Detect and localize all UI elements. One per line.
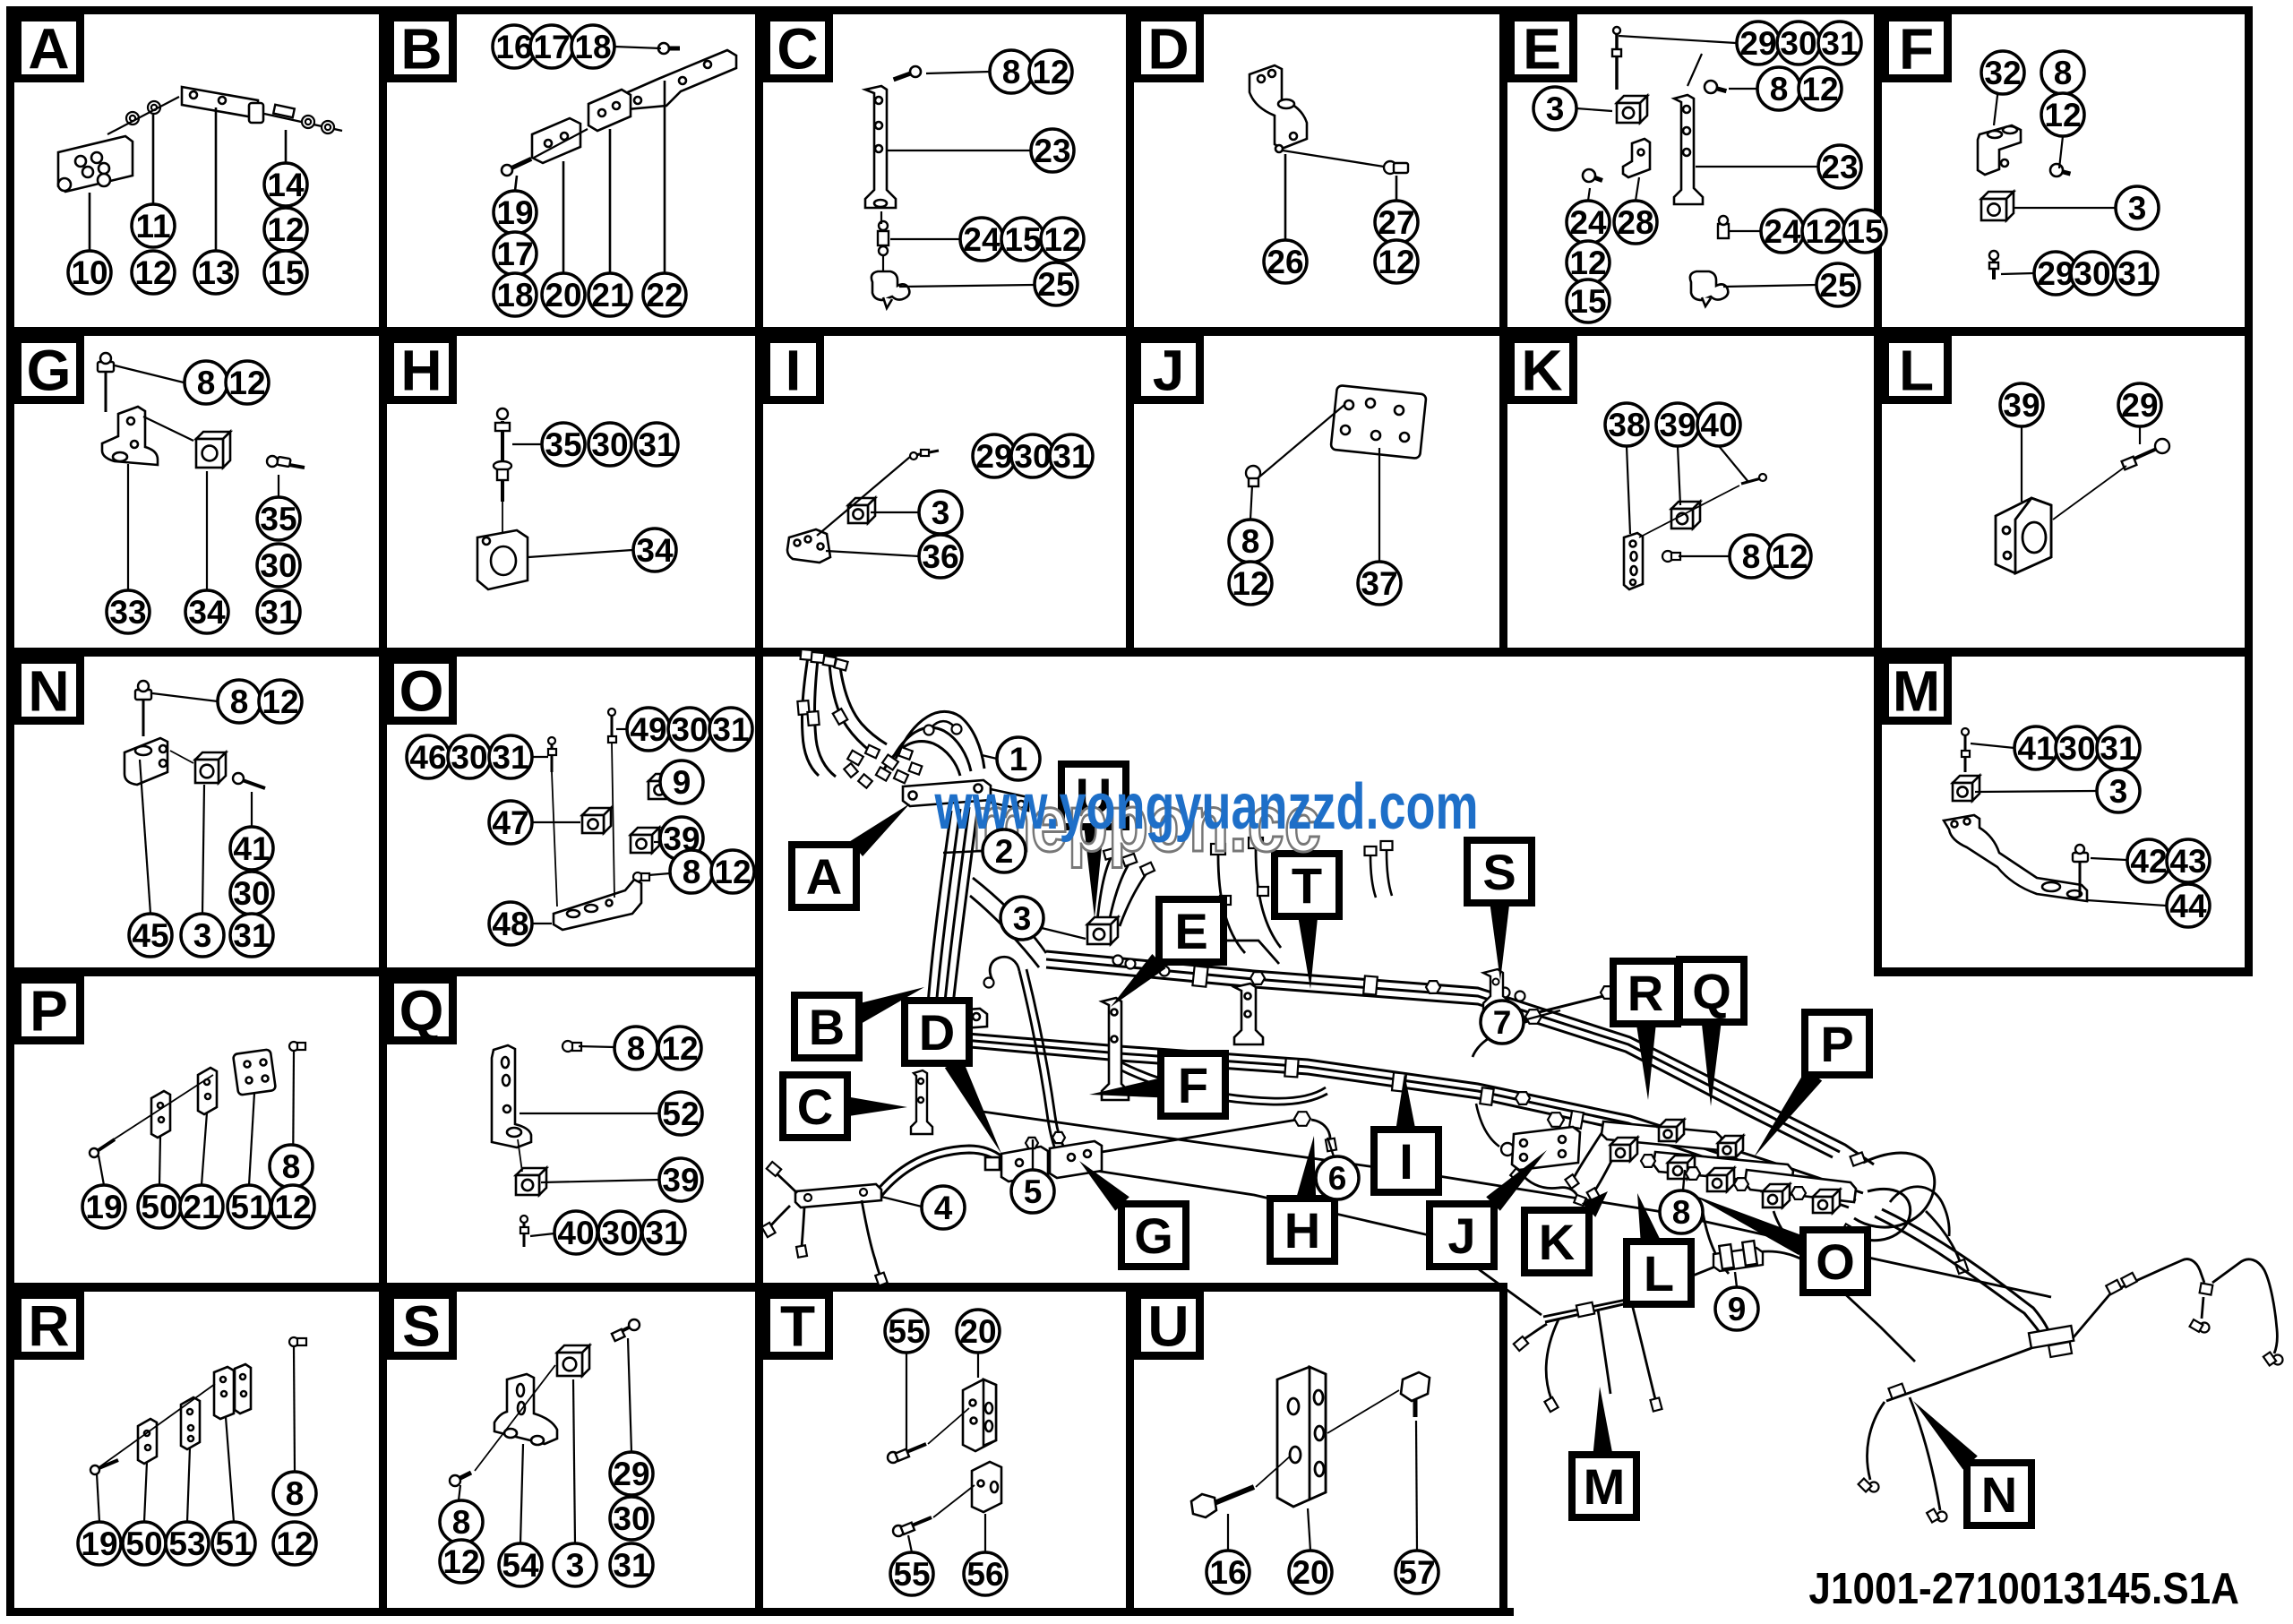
svg-text:26: 26 (1267, 244, 1303, 280)
svg-text:J: J (1447, 1207, 1475, 1264)
svg-text:A: A (28, 17, 69, 82)
svg-text:21: 21 (591, 277, 628, 314)
svg-text:45: 45 (132, 917, 168, 954)
svg-text:31: 31 (1052, 438, 1089, 475)
svg-text:G: G (27, 339, 72, 403)
svg-text:12: 12 (262, 683, 298, 720)
svg-text:31: 31 (638, 426, 674, 463)
svg-text:34: 34 (636, 532, 674, 569)
svg-text:30: 30 (601, 1215, 638, 1251)
svg-text:29: 29 (975, 438, 1012, 475)
svg-text:T: T (780, 1294, 815, 1359)
svg-text:3: 3 (2128, 190, 2147, 227)
svg-text:9: 9 (1728, 1291, 1747, 1328)
svg-text:3: 3 (566, 1547, 585, 1584)
svg-text:35: 35 (260, 501, 296, 537)
svg-text:30: 30 (451, 739, 487, 776)
svg-text:44: 44 (2169, 888, 2207, 924)
svg-text:31: 31 (492, 739, 528, 776)
svg-text:8: 8 (683, 854, 701, 890)
svg-text:20: 20 (959, 1313, 996, 1350)
svg-text:S: S (402, 1294, 441, 1359)
svg-text:8: 8 (627, 1030, 646, 1067)
svg-text:27: 27 (1378, 204, 1414, 241)
svg-text:D: D (1147, 17, 1189, 82)
svg-text:41: 41 (233, 830, 270, 867)
svg-text:B: B (400, 17, 442, 82)
svg-text:15: 15 (1004, 221, 1041, 258)
svg-text:12: 12 (276, 1525, 313, 1562)
svg-text:24: 24 (1764, 213, 1801, 250)
svg-text:K: K (1539, 1214, 1575, 1270)
svg-text:R: R (1627, 965, 1663, 1021)
svg-text:29: 29 (2037, 255, 2074, 292)
svg-text:54: 54 (502, 1547, 539, 1584)
svg-text:3: 3 (1013, 900, 1032, 937)
svg-text:25: 25 (1819, 267, 1856, 304)
svg-text:N: N (1981, 1466, 2017, 1523)
svg-text:12: 12 (442, 1543, 479, 1580)
svg-text:M: M (1893, 659, 1940, 724)
svg-text:50: 50 (141, 1189, 177, 1225)
svg-text:30: 30 (1780, 25, 1816, 62)
svg-text:53: 53 (168, 1525, 205, 1562)
svg-text:R: R (28, 1294, 69, 1359)
svg-text:15: 15 (1846, 213, 1883, 250)
svg-text:57: 57 (1398, 1554, 1435, 1591)
svg-text:31: 31 (260, 594, 296, 631)
svg-text:19: 19 (496, 194, 533, 231)
svg-text:24: 24 (963, 221, 1001, 258)
svg-text:M: M (1584, 1458, 1626, 1515)
svg-text:N: N (28, 659, 69, 724)
svg-text:30: 30 (591, 426, 628, 463)
svg-text:31: 31 (645, 1215, 682, 1251)
svg-text:D: D (919, 1004, 955, 1061)
svg-text:33: 33 (109, 594, 146, 631)
svg-text:3: 3 (932, 494, 950, 531)
svg-text:30: 30 (613, 1500, 649, 1537)
svg-text:23: 23 (1821, 149, 1858, 185)
svg-text:30: 30 (1014, 438, 1051, 475)
svg-text:55: 55 (893, 1556, 930, 1593)
svg-text:12: 12 (1805, 213, 1842, 250)
svg-text:23: 23 (1034, 133, 1070, 169)
svg-text:31: 31 (2100, 730, 2136, 767)
svg-text:C: C (797, 1078, 833, 1135)
svg-text:C: C (777, 17, 818, 82)
svg-text:4: 4 (934, 1190, 953, 1226)
svg-text:12: 12 (134, 254, 171, 291)
svg-text:B: B (809, 999, 845, 1055)
svg-text:3: 3 (193, 917, 212, 954)
svg-text:32: 32 (1984, 55, 2021, 91)
svg-text:I: I (786, 339, 802, 403)
svg-text:13: 13 (197, 254, 234, 291)
svg-text:42: 42 (2130, 843, 2167, 880)
svg-text:H: H (1284, 1202, 1320, 1259)
svg-text:25: 25 (1037, 266, 1074, 303)
svg-text:L: L (1644, 1245, 1674, 1302)
svg-text:37: 37 (1361, 565, 1397, 602)
svg-text:Q: Q (399, 979, 444, 1044)
svg-text:19: 19 (81, 1525, 117, 1562)
svg-text:H: H (400, 339, 442, 403)
svg-text:47: 47 (492, 804, 528, 841)
svg-text:29: 29 (2121, 387, 2158, 424)
svg-text:S: S (1482, 844, 1516, 900)
svg-text:28: 28 (1617, 204, 1653, 241)
svg-text:U: U (1147, 1294, 1189, 1359)
svg-text:I: I (1399, 1133, 1413, 1190)
svg-text:E: E (1174, 903, 1207, 959)
svg-text:O: O (399, 659, 444, 724)
svg-text:41: 41 (2017, 730, 2054, 767)
svg-text:51: 51 (230, 1189, 267, 1225)
svg-text:8: 8 (282, 1148, 301, 1185)
svg-text:12: 12 (274, 1189, 311, 1225)
svg-text:12: 12 (1032, 54, 1069, 90)
svg-text:14: 14 (267, 167, 305, 203)
svg-text:12: 12 (1043, 221, 1080, 258)
svg-text:18: 18 (574, 29, 611, 65)
svg-text:38: 38 (1608, 407, 1645, 443)
svg-text:F: F (1899, 17, 1934, 82)
svg-text:15: 15 (1569, 283, 1606, 320)
svg-text:51: 51 (215, 1525, 252, 1562)
svg-text:31: 31 (613, 1547, 649, 1584)
svg-text:24: 24 (1569, 204, 1607, 241)
svg-text:8: 8 (230, 683, 249, 720)
svg-text:11: 11 (135, 208, 170, 245)
svg-text:29: 29 (613, 1456, 649, 1492)
svg-text:43: 43 (2169, 843, 2206, 880)
svg-text:Q: Q (1692, 963, 1731, 1019)
svg-text:46: 46 (409, 739, 446, 776)
svg-text:K: K (1521, 339, 1562, 403)
svg-text:31: 31 (712, 711, 749, 748)
svg-text:E: E (1523, 17, 1561, 82)
svg-text:39: 39 (1659, 407, 1696, 443)
svg-text:12: 12 (1232, 565, 1268, 602)
svg-text:5: 5 (1024, 1173, 1043, 1210)
svg-text:30: 30 (233, 875, 270, 912)
svg-text:36: 36 (922, 538, 958, 575)
svg-text:20: 20 (1292, 1554, 1328, 1591)
svg-text:30: 30 (2058, 730, 2095, 767)
svg-text:48: 48 (492, 906, 528, 942)
svg-text:16: 16 (495, 29, 532, 65)
svg-text:15: 15 (267, 254, 304, 291)
svg-text:G: G (1134, 1207, 1173, 1264)
svg-text:A: A (806, 848, 842, 905)
svg-text:17: 17 (533, 29, 570, 65)
svg-text:12: 12 (1771, 538, 1808, 575)
svg-text:39: 39 (662, 1162, 699, 1199)
svg-text:56: 56 (966, 1556, 1003, 1593)
svg-text:12: 12 (267, 211, 304, 248)
svg-text:35: 35 (545, 426, 581, 463)
svg-text:40: 40 (557, 1215, 594, 1251)
svg-text:40: 40 (1700, 407, 1737, 443)
svg-text:16: 16 (1209, 1554, 1246, 1591)
svg-text:12: 12 (1801, 71, 1838, 107)
svg-text:8: 8 (1770, 71, 1789, 107)
svg-text:39: 39 (2003, 387, 2040, 424)
svg-text:8: 8 (1002, 54, 1021, 90)
svg-text:30: 30 (260, 547, 296, 584)
svg-text:3: 3 (2109, 773, 2128, 810)
svg-text:8: 8 (1672, 1194, 1691, 1231)
svg-text:30: 30 (671, 711, 708, 748)
svg-text:L: L (1899, 339, 1934, 403)
svg-text:49: 49 (630, 711, 666, 748)
svg-text:8: 8 (2054, 55, 2073, 91)
svg-text:8: 8 (1742, 538, 1761, 575)
svg-text:12: 12 (1378, 244, 1414, 280)
svg-text:P: P (30, 979, 68, 1044)
svg-text:30: 30 (2074, 255, 2110, 292)
svg-text:J: J (1153, 339, 1185, 403)
svg-text:31: 31 (2117, 255, 2154, 292)
svg-text:3: 3 (1546, 90, 1565, 127)
svg-text:1: 1 (1009, 741, 1028, 778)
svg-text:52: 52 (662, 1096, 699, 1132)
svg-text:19: 19 (85, 1189, 122, 1225)
svg-text:29: 29 (1739, 25, 1776, 62)
svg-text:22: 22 (646, 277, 683, 314)
svg-text:9: 9 (673, 764, 691, 801)
svg-text:8: 8 (1241, 523, 1260, 560)
svg-text:P: P (1820, 1016, 1853, 1072)
svg-text:20: 20 (545, 277, 581, 314)
svg-text:O: O (1816, 1233, 1855, 1290)
svg-text:31: 31 (1821, 25, 1858, 62)
svg-text:8: 8 (286, 1475, 305, 1512)
svg-text:12: 12 (2044, 97, 2081, 133)
svg-text:F: F (1178, 1057, 1208, 1113)
svg-text:10: 10 (71, 254, 107, 291)
svg-text:8: 8 (452, 1504, 471, 1541)
svg-text:12: 12 (228, 365, 265, 401)
svg-text:12: 12 (714, 854, 751, 890)
svg-text:55: 55 (888, 1313, 924, 1350)
svg-text:6: 6 (1328, 1160, 1347, 1197)
svg-text:7: 7 (1493, 1004, 1512, 1041)
svg-text:2: 2 (995, 833, 1014, 870)
svg-text:12: 12 (661, 1030, 698, 1067)
svg-text:18: 18 (496, 277, 533, 314)
svg-text:34: 34 (188, 594, 226, 631)
svg-text:17: 17 (496, 236, 533, 272)
svg-text:21: 21 (183, 1189, 219, 1225)
svg-text:J1001-2710013145.S1A: J1001-2710013145.S1A (1808, 1564, 2239, 1613)
svg-text:12: 12 (1569, 245, 1606, 281)
svg-text:31: 31 (233, 917, 270, 954)
svg-text:50: 50 (125, 1525, 162, 1562)
svg-text:8: 8 (197, 365, 216, 401)
